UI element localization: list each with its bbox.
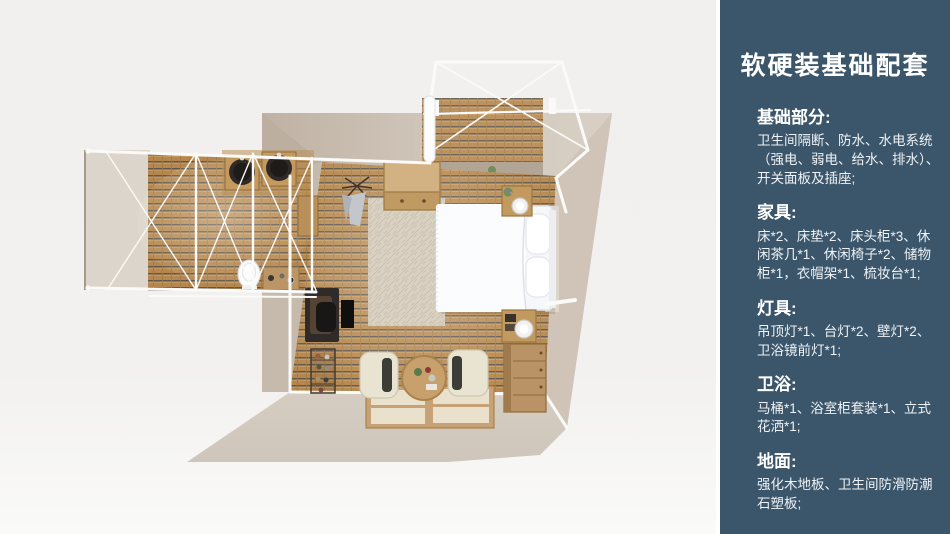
- desk-chair: [316, 302, 336, 332]
- round-tea-table: [402, 356, 446, 400]
- vanity-item: [268, 275, 274, 281]
- table-card: [426, 384, 437, 390]
- bed-blanket: [436, 204, 526, 312]
- info-panel: 软硬装基础配套 基础部分: 卫生间隔断、防水、水电系统（强电、弱电、给水、排水）…: [720, 0, 950, 534]
- section-floor: 地面: 强化木地板、卫生间防滑防潮石塑板;: [757, 452, 940, 514]
- knob-icon: [400, 199, 404, 203]
- area-rug: [368, 198, 445, 326]
- balcony-tint: [422, 98, 543, 162]
- slide: 软硬装基础配套 基础部分: 卫生间隔断、防水、水电系统（强电、弱电、给水、排水）…: [0, 0, 950, 534]
- knob-icon: [422, 199, 426, 203]
- knob-icon: [540, 386, 543, 389]
- pillow: [526, 257, 550, 297]
- rolled-curtain: [424, 96, 435, 162]
- section-heading: 家具:: [757, 203, 940, 223]
- section-text: 吊顶灯*1、台灯*2、壁灯*2、卫浴镜前灯*1;: [757, 323, 943, 360]
- section-text: 强化木地板、卫生间防滑防潮石塑板;: [757, 476, 943, 513]
- nightstand-top: [502, 186, 532, 216]
- section-lighting: 灯具: 吊顶灯*1、台灯*2、壁灯*2、卫浴镜前灯*1;: [757, 299, 940, 361]
- headboard: [549, 210, 556, 308]
- table-lamp-top: [519, 324, 528, 333]
- pillow: [526, 214, 550, 254]
- section-furniture: 家具: 床*2、床垫*2、床头柜*3、休闲茶几*1、休闲椅子*2、储物柜*1，衣…: [757, 203, 940, 283]
- nightstand-bottom: [502, 310, 536, 342]
- mat-panel: [433, 407, 489, 423]
- double-bed: [436, 204, 556, 314]
- knob-icon: [540, 352, 543, 355]
- mirror-panel: [341, 300, 354, 328]
- toilet: [238, 260, 260, 288]
- floorplan-render: [0, 0, 720, 534]
- flower-icon: [505, 189, 507, 191]
- lounge-chair-left: [360, 352, 398, 398]
- shoe-rack: [311, 349, 335, 393]
- section-text: 卫生间隔断、防水、水电系统（强电、弱电、给水、排水）、开关面板及插座;: [757, 132, 943, 188]
- section-basics: 基础部分: 卫生间隔断、防水、水电系统（强电、弱电、给水、排水）、开关面板及插座…: [757, 108, 940, 188]
- section-bathroom: 卫浴: 马桶*1、浴室柜套装*1、立式花洒*1;: [757, 375, 940, 437]
- flower-icon: [510, 192, 512, 194]
- table-item: [429, 375, 436, 382]
- knob-icon: [540, 369, 543, 372]
- nightstand-item: [505, 324, 516, 331]
- floorplan-svg: [0, 0, 720, 534]
- dresser: [504, 344, 546, 412]
- section-heading: 地面:: [757, 452, 940, 472]
- vanity-item: [280, 274, 285, 279]
- storage-cabinet: [384, 162, 440, 194]
- panel-title: 软硬装基础配套: [720, 46, 950, 82]
- sink-basin-inner: [270, 159, 288, 177]
- shoe-rack-frame: [311, 349, 335, 393]
- section-heading: 基础部分:: [757, 108, 940, 128]
- flower-icon: [425, 367, 431, 373]
- section-heading: 卫浴:: [757, 375, 940, 395]
- wall-shelf: [298, 196, 318, 236]
- storage-cabinet-drawer: [384, 192, 440, 210]
- table-lamp-top: [516, 202, 524, 210]
- lounge-chair-right: [448, 350, 488, 396]
- plant-icon: [414, 368, 422, 376]
- section-heading: 灯具:: [757, 299, 940, 319]
- section-text: 床*2、床垫*2、床头柜*3、休闲茶几*1、休闲椅子*2、储物柜*1，衣帽架*1…: [757, 228, 943, 284]
- section-text: 马桶*1、浴室柜套装*1、立式花洒*1;: [757, 400, 943, 437]
- nightstand-item: [505, 314, 516, 322]
- mat-panel: [371, 408, 425, 424]
- panel-body: 基础部分: 卫生间隔断、防水、水电系统（强电、弱电、给水、排水）、开关面板及插座…: [720, 82, 950, 513]
